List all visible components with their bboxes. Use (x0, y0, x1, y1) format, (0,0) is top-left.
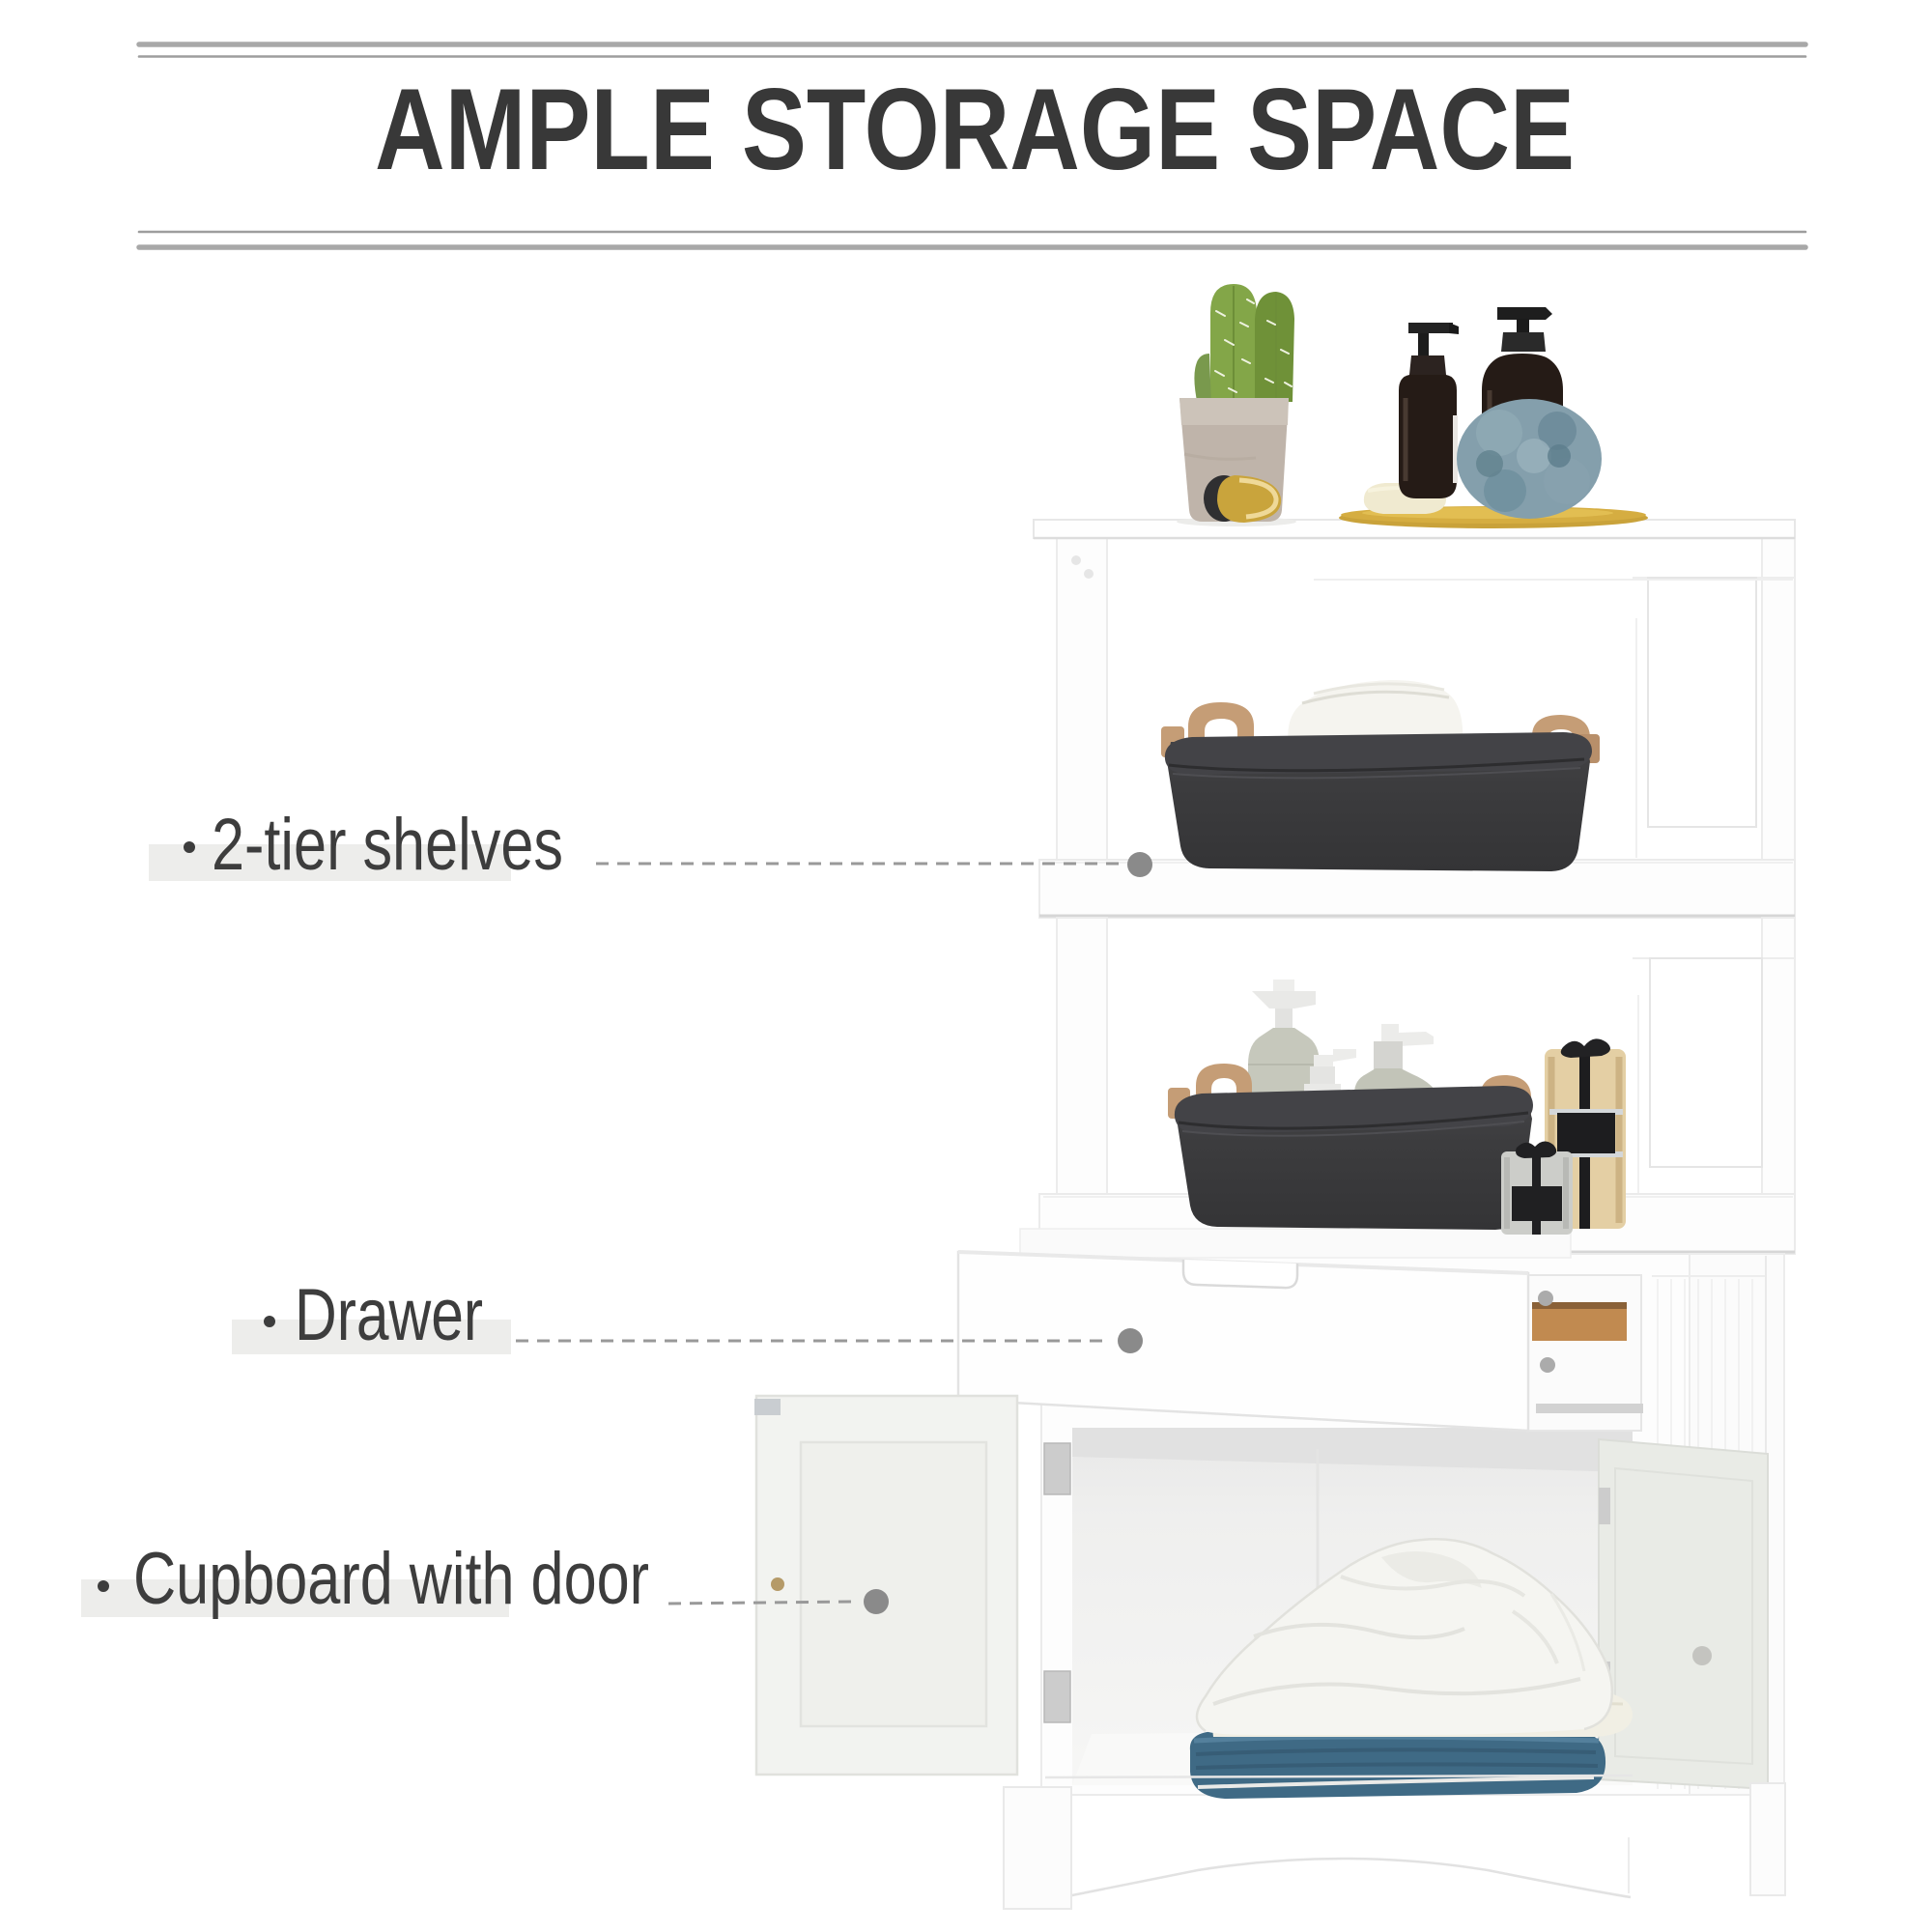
svg-text:Drawer: Drawer (295, 1274, 483, 1356)
svg-text:2-tier shelves: 2-tier shelves (212, 804, 563, 886)
svg-text:AMPLE STORAGE SPACE: AMPLE STORAGE SPACE (375, 65, 1575, 194)
svg-text:Cupboard with door: Cupboard with door (133, 1538, 649, 1620)
